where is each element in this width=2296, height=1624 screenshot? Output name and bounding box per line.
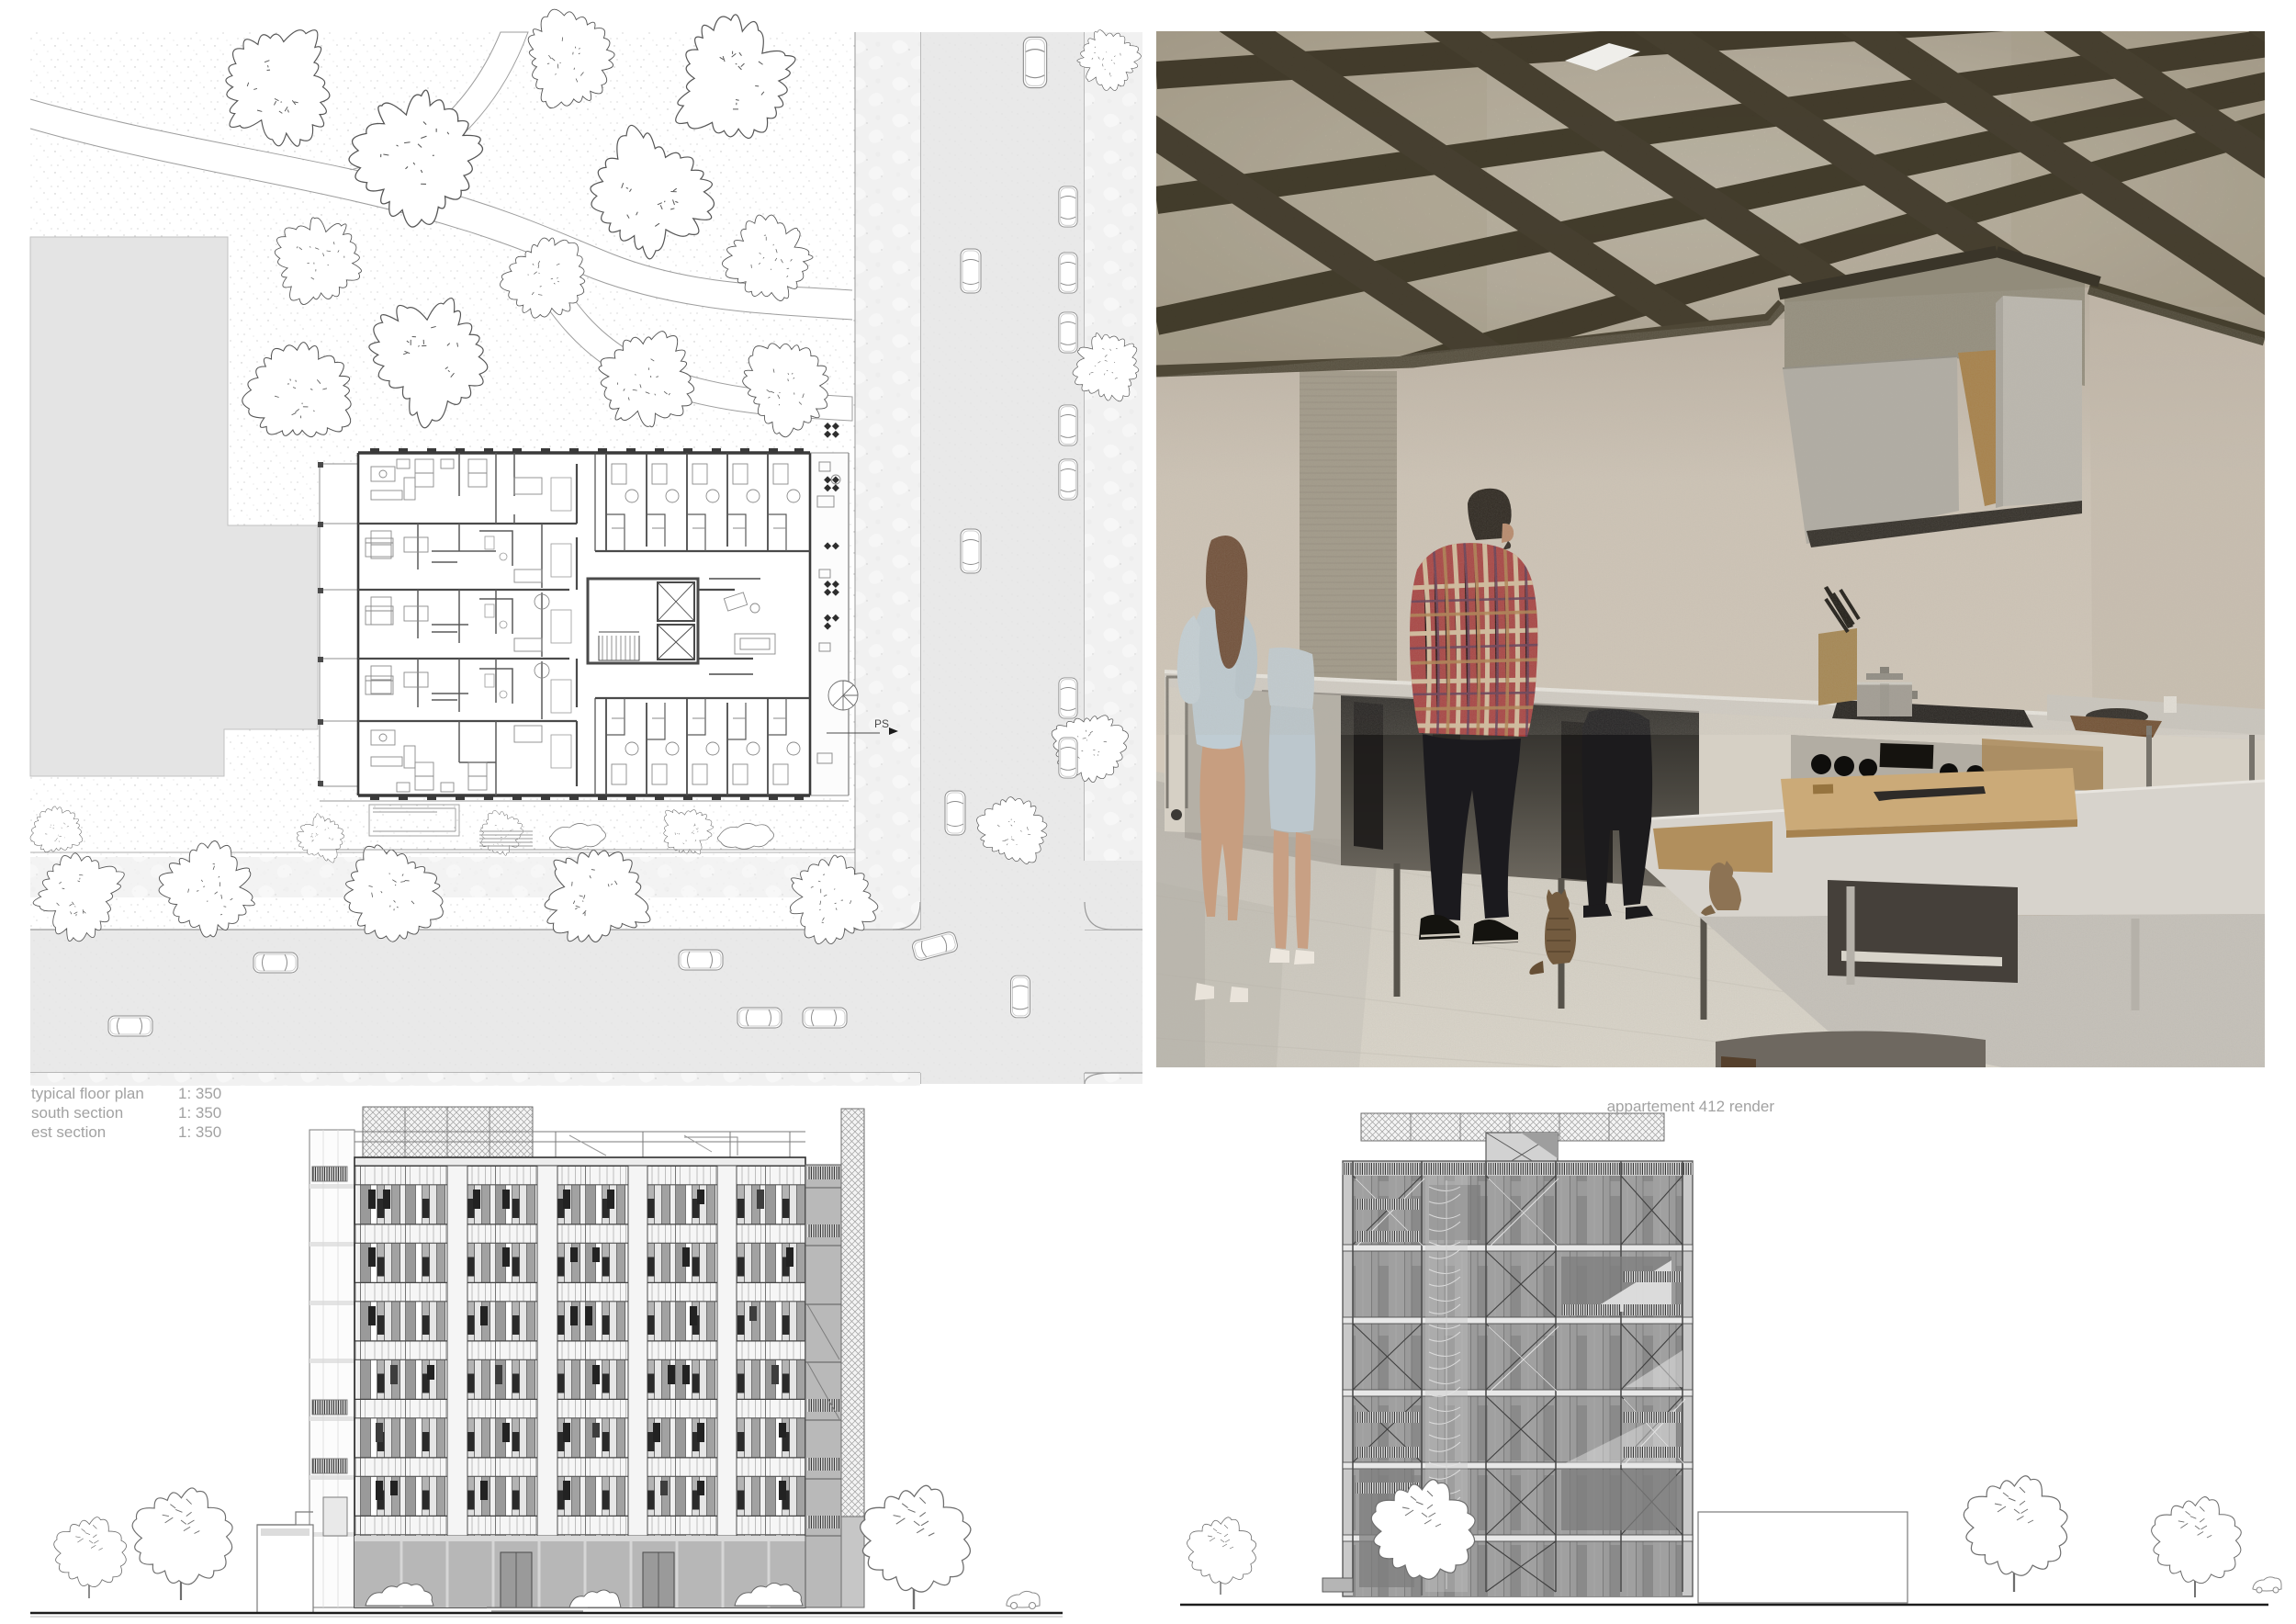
- svg-text:1: 350: 1: 350: [178, 1085, 221, 1102]
- svg-text:est section: est section: [31, 1123, 106, 1141]
- svg-text:appartement 412 render: appartement 412 render: [1607, 1098, 1775, 1115]
- svg-text:1: 350: 1: 350: [178, 1104, 221, 1122]
- svg-text:south section: south section: [31, 1104, 123, 1122]
- svg-text:PS: PS: [874, 717, 889, 730]
- svg-text:typical floor plan: typical floor plan: [31, 1085, 144, 1102]
- svg-text:1: 350: 1: 350: [178, 1123, 221, 1141]
